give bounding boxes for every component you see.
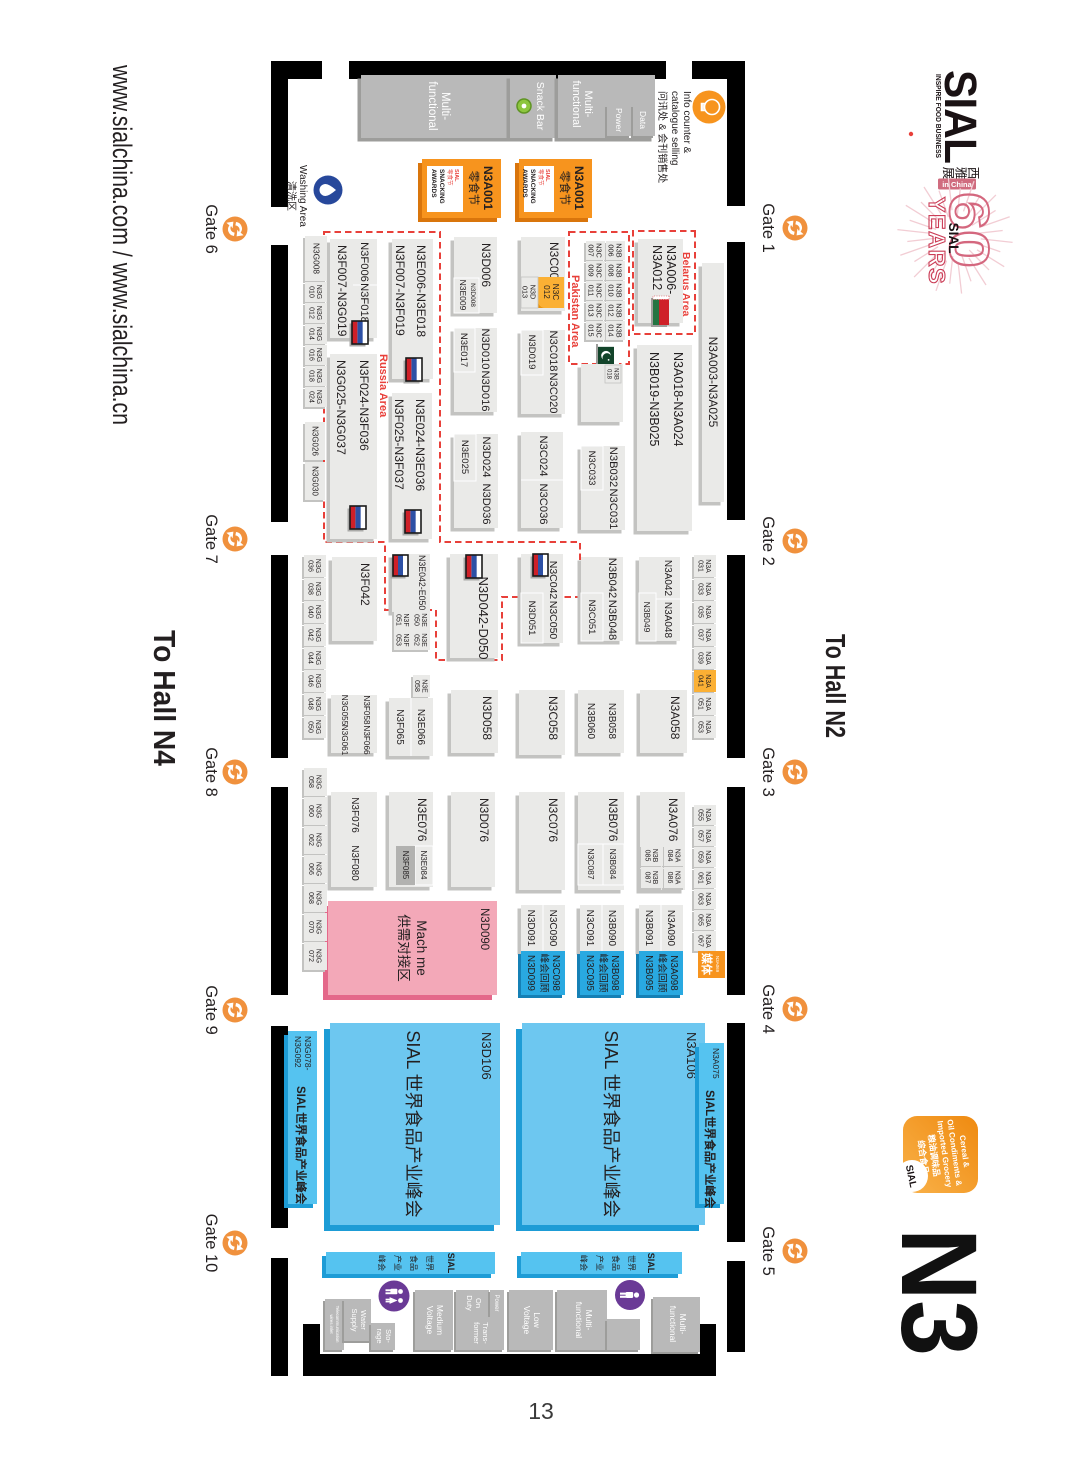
svg-text:N3A: N3A [704, 628, 711, 642]
svg-text:INSPIRE FOOD BUSINESS: INSPIRE FOOD BUSINESS [934, 74, 943, 158]
svg-text:046: 046 [307, 675, 314, 687]
svg-text:044: 044 [307, 652, 314, 664]
svg-text:SIAL 世界食品产业峰会: SIAL 世界食品产业峰会 [403, 1030, 423, 1217]
svg-text:014: 014 [308, 328, 315, 340]
svg-text:Gate 4: Gate 4 [759, 984, 777, 1034]
svg-text:SIAL: SIAL [446, 1253, 456, 1274]
svg-text:N3E: N3E [421, 679, 428, 693]
svg-text:N3C033: N3C033 [586, 451, 597, 486]
svg-text:N3D036: N3D036 [480, 483, 492, 524]
svg-text:Voltage: Voltage [522, 1306, 532, 1335]
svg-text:N3B084: N3B084 [608, 849, 618, 880]
svg-text:012: 012 [308, 307, 315, 319]
svg-text:N3D010: N3D010 [479, 328, 491, 369]
svg-text:036: 036 [307, 560, 314, 572]
svg-text:N3F024-N3F036: N3F024-N3F036 [357, 360, 371, 451]
svg-text:060: 060 [307, 805, 314, 817]
svg-text:N3C098: N3C098 [550, 955, 561, 991]
svg-text:To Hall N4: To Hall N4 [147, 630, 182, 767]
svg-text:067: 067 [697, 935, 704, 947]
svg-text:007: 007 [587, 244, 596, 256]
svg-text:N3F076: N3F076 [349, 797, 360, 833]
svg-text:零食节: 零食节 [558, 171, 572, 206]
svg-text:050: 050 [413, 614, 420, 626]
svg-text:Mach me: Mach me [414, 920, 429, 976]
svg-text:N3G: N3G [315, 369, 322, 383]
svg-text:N3E: N3E [420, 633, 427, 647]
svg-text:N3: N3 [879, 1228, 1000, 1356]
svg-text:050: 050 [307, 721, 314, 733]
svg-text:048: 048 [307, 698, 314, 710]
svg-text:N3G: N3G [314, 697, 321, 711]
svg-text:N3G026: N3G026 [311, 426, 320, 456]
svg-text:N3C020: N3C020 [547, 372, 559, 413]
svg-text:零食节: 零食节 [446, 169, 454, 186]
svg-text:010: 010 [308, 286, 315, 298]
svg-text:N3A: N3A [704, 913, 711, 927]
svg-text:产业: 产业 [595, 1255, 605, 1271]
svg-text:SIAL: SIAL [544, 169, 550, 182]
svg-text:former: former [472, 1322, 481, 1344]
svg-text:供需对接区: 供需对接区 [396, 914, 412, 982]
svg-text:N3C076: N3C076 [546, 798, 560, 842]
svg-text:052: 052 [413, 634, 420, 646]
svg-text:039: 039 [697, 652, 704, 664]
svg-text:N3G: N3G [314, 720, 321, 734]
svg-text:Russia Area: Russia Area [377, 354, 389, 418]
svg-text:N3A012: N3A012 [650, 245, 664, 290]
svg-text:014: 014 [607, 324, 616, 336]
svg-text:N3A: N3A [674, 871, 681, 885]
svg-text:070: 070 [307, 921, 314, 933]
svg-text:SIAL 世界食品产业峰会: SIAL 世界食品产业峰会 [601, 1030, 621, 1217]
svg-text:087: 087 [644, 872, 651, 884]
svg-text:084: 084 [666, 850, 673, 862]
svg-text:N3A042: N3A042 [662, 560, 673, 597]
svg-text:catalogue selling: catalogue selling [669, 91, 680, 166]
svg-text:N3A: N3A [704, 871, 711, 885]
svg-text:011: 011 [587, 285, 596, 297]
svg-text:N3A: N3A [704, 582, 711, 596]
svg-text:N3F007-N3G019: N3F007-N3G019 [335, 245, 349, 337]
svg-text:066: 066 [307, 863, 314, 875]
svg-text:媒体: 媒体 [700, 952, 714, 976]
svg-text:N3F007-N3F019: N3F007-N3F019 [393, 245, 407, 336]
svg-text:N3C090: N3C090 [547, 910, 558, 947]
svg-text:N3E084: N3E084 [419, 851, 428, 880]
svg-text:N3C058: N3C058 [546, 696, 560, 740]
svg-text:N3A: N3A [704, 808, 711, 822]
svg-text:峰会回顾: 峰会回顾 [656, 953, 669, 992]
svg-text:051: 051 [395, 614, 402, 626]
svg-text:Multi-: Multi- [678, 1314, 688, 1335]
svg-text:015: 015 [587, 324, 596, 336]
svg-text:Gate 2: Gate 2 [759, 516, 777, 566]
svg-text:Info counter &: Info counter & [681, 91, 692, 154]
svg-text:058: 058 [413, 680, 420, 692]
svg-text:N3F025-N3F037: N3F025-N3F037 [392, 399, 406, 490]
svg-text:N3D016: N3D016 [479, 370, 491, 411]
svg-text:053: 053 [395, 634, 402, 646]
svg-text:N3D019: N3D019 [526, 335, 537, 370]
svg-text:012: 012 [607, 304, 616, 316]
svg-text:013: 013 [587, 304, 596, 316]
svg-text:Gate 1: Gate 1 [759, 203, 777, 253]
svg-text:N3G: N3G [315, 327, 322, 341]
svg-text:062: 062 [307, 834, 314, 846]
svg-text:055: 055 [697, 809, 704, 821]
svg-text:N3A: N3A [704, 720, 711, 734]
svg-text:N3G061: N3G061 [340, 725, 349, 756]
svg-text:N3D076: N3D076 [477, 798, 491, 842]
svg-text:N3G030: N3G030 [311, 466, 320, 496]
svg-text:N3D106: N3D106 [479, 1032, 494, 1080]
svg-text:展: 展 [941, 167, 955, 180]
svg-text:Gate 5: Gate 5 [759, 1226, 777, 1276]
svg-text:Trans-: Trans- [481, 1322, 490, 1344]
svg-text:Gate 3: Gate 3 [759, 747, 777, 797]
svg-text:N3E017: N3E017 [458, 333, 469, 367]
svg-text:024: 024 [308, 391, 315, 403]
svg-text:N3E042-E050: N3E042-E050 [417, 555, 427, 610]
svg-text:N3G: N3G [314, 628, 321, 642]
svg-text:N3G008: N3G008 [311, 243, 321, 275]
svg-text:018: 018 [606, 369, 612, 380]
svg-text:N3A001: N3A001 [481, 166, 495, 210]
svg-text:040: 040 [307, 606, 314, 618]
svg-text:N3A: N3A [704, 829, 711, 843]
svg-text:www.sialchina.com / www.sialch: www.sialchina.com / www.sialchina.cn [107, 64, 137, 425]
svg-text:Sto-: Sto- [384, 1329, 393, 1343]
svg-text:Data: Data [638, 111, 648, 129]
svg-text:SIAL: SIAL [946, 223, 961, 254]
svg-text:N3B: N3B [651, 849, 658, 863]
svg-text:010: 010 [607, 284, 616, 296]
svg-text:063: 063 [697, 893, 704, 905]
svg-text:042: 042 [307, 629, 314, 641]
svg-text:N3E006-N3E018: N3E006-N3E018 [414, 245, 428, 337]
svg-text:N3A003-N3A025: N3A003-N3A025 [706, 337, 720, 428]
svg-text:Gate 10: Gate 10 [202, 1214, 220, 1273]
svg-text:峰会回顾: 峰会回顾 [597, 953, 610, 992]
svg-text:峰会: 峰会 [377, 1255, 387, 1271]
svg-text:Washing Area: Washing Area [297, 165, 308, 227]
svg-text:in China: in China [942, 180, 972, 189]
svg-text:N3G: N3G [314, 559, 321, 573]
svg-text:065: 065 [697, 914, 704, 926]
svg-text:N3E024-N3E036: N3E024-N3E036 [413, 399, 427, 491]
svg-text:N3A: N3A [704, 892, 711, 906]
svg-text:N3A: N3A [704, 605, 711, 619]
svg-text:N3B: N3B [613, 368, 619, 380]
svg-text:functional: functional [668, 1306, 678, 1342]
svg-text:006: 006 [607, 244, 616, 256]
svg-text:N3G: N3G [315, 891, 322, 905]
svg-text:N3B060: N3B060 [585, 703, 596, 740]
svg-text:N3F018: N3F018 [358, 283, 370, 323]
svg-text:Telecommunication: Telecommunication [335, 1306, 340, 1343]
svg-text:N3E066: N3E066 [415, 709, 426, 746]
svg-text:N3B098: N3B098 [609, 955, 620, 991]
svg-text:072: 072 [307, 950, 314, 962]
svg-text:N3A075: N3A075 [711, 1048, 721, 1079]
svg-text:N3G: N3G [315, 775, 322, 789]
svg-text:Gate 9: Gate 9 [202, 985, 220, 1035]
svg-text:N3F065: N3F065 [394, 709, 405, 745]
svg-text:Low: Low [532, 1312, 542, 1328]
svg-text:峰会回顾: 峰会回顾 [538, 953, 551, 992]
svg-text:N3C: N3C [551, 284, 560, 300]
svg-text:N3E: N3E [420, 613, 427, 627]
svg-text:wires inlet: wires inlet [329, 1314, 334, 1334]
svg-text:N3B032: N3B032 [607, 447, 619, 487]
svg-text:N3F058: N3F058 [362, 695, 371, 725]
svg-text:SIAL世界食品产业峰会: SIAL世界食品产业峰会 [294, 1086, 308, 1205]
svg-text:051: 051 [697, 698, 704, 710]
svg-text:Duty: Duty [465, 1295, 474, 1311]
svg-text:N3B076: N3B076 [606, 798, 620, 842]
svg-text:059: 059 [697, 851, 704, 863]
svg-text:N3D099: N3D099 [525, 955, 536, 991]
svg-text:产业: 产业 [393, 1255, 403, 1271]
svg-text:Supply: Supply [350, 1309, 359, 1332]
svg-text:N3G: N3G [314, 651, 321, 665]
svg-text:N3A069: N3A069 [715, 956, 720, 973]
svg-text:N3A: N3A [704, 651, 711, 665]
svg-text:零食节: 零食节 [467, 171, 481, 206]
svg-text:N3G055: N3G055 [340, 695, 349, 726]
svg-text:N3E009: N3E009 [458, 280, 468, 311]
svg-text:041: 041 [697, 675, 704, 687]
svg-text:Power: Power [614, 108, 624, 132]
svg-text:058: 058 [307, 776, 314, 788]
svg-text:rage: rage [375, 1328, 384, 1343]
svg-text:N3C091: N3C091 [584, 910, 595, 947]
svg-text:Water: Water [359, 1310, 368, 1330]
svg-text:N3F: N3F [402, 633, 409, 646]
svg-text:N3G078-: N3G078- [303, 1036, 313, 1071]
svg-text:N3C087: N3C087 [586, 848, 596, 879]
svg-text:N3A: N3A [674, 849, 681, 863]
svg-text:To Hall N2: To Hall N2 [820, 634, 851, 738]
svg-text:峰会: 峰会 [579, 1255, 589, 1271]
svg-text:N3B090: N3B090 [606, 910, 617, 947]
svg-text:N3G: N3G [315, 285, 322, 299]
svg-text:N3D091: N3D091 [525, 910, 536, 947]
svg-text:N3F080: N3F080 [349, 845, 360, 881]
svg-text:053: 053 [697, 721, 704, 733]
svg-text:世界: 世界 [627, 1255, 637, 1271]
svg-text:008: 008 [607, 264, 616, 276]
svg-text:N3A: N3A [704, 697, 711, 711]
svg-text:AWARDS: AWARDS [430, 169, 437, 198]
svg-text:N3G: N3G [315, 920, 322, 934]
svg-text:068: 068 [307, 892, 314, 904]
svg-text:N3C031: N3C031 [607, 488, 619, 529]
svg-text:SIAL世界食品产业峰会: SIAL世界食品产业峰会 [703, 1090, 717, 1209]
svg-text:086: 086 [666, 872, 673, 884]
svg-text:038: 038 [307, 583, 314, 595]
svg-text:057: 057 [697, 830, 704, 842]
svg-text:N3A090: N3A090 [665, 910, 676, 947]
svg-text:N3F: N3F [402, 613, 409, 626]
svg-text:SNACKING: SNACKING [529, 169, 536, 204]
svg-text:009: 009 [587, 264, 596, 276]
svg-text:N3A098: N3A098 [668, 955, 679, 991]
svg-text:AWARDS: AWARDS [521, 169, 528, 198]
svg-text:N3E025: N3E025 [459, 440, 470, 474]
svg-text:016: 016 [308, 349, 315, 361]
svg-text:Power: Power [493, 1294, 499, 1311]
svg-text:N3A: N3A [704, 559, 711, 573]
svg-text:Gate 6: Gate 6 [202, 204, 220, 254]
svg-text:N3C051: N3C051 [586, 600, 597, 635]
svg-text:N3C024: N3C024 [537, 435, 549, 476]
svg-text:零食节: 零食节 [537, 169, 545, 186]
svg-text:N3G: N3G [315, 862, 322, 876]
svg-text:世界: 世界 [425, 1255, 435, 1271]
svg-text:N3A076: N3A076 [666, 798, 680, 842]
svg-text:N3D042-D050: N3D042-D050 [476, 576, 491, 659]
svg-text:N3G: N3G [315, 949, 322, 963]
svg-text:013: 013 [521, 286, 530, 298]
svg-text:N3F006: N3F006 [358, 242, 370, 282]
svg-text:N3D008: N3D008 [469, 283, 476, 307]
svg-text:061: 061 [697, 872, 704, 884]
svg-text:N3G: N3G [314, 582, 321, 596]
svg-text:N3C050: N3C050 [547, 601, 559, 640]
svg-text:functional: functional [570, 80, 582, 127]
svg-text:N3D051: N3D051 [526, 601, 537, 636]
svg-text:N3G: N3G [315, 390, 322, 404]
svg-text:Gate 7: Gate 7 [202, 514, 220, 564]
svg-text:037: 037 [697, 629, 704, 641]
svg-text:N3B049: N3B049 [642, 602, 652, 633]
svg-text:Multi-: Multi- [584, 1310, 594, 1331]
svg-text:食品: 食品 [409, 1255, 419, 1271]
svg-text:N3G: N3G [315, 804, 322, 818]
svg-text:Pakistan Area: Pakistan Area [569, 275, 581, 348]
svg-text:Multi-: Multi- [582, 91, 594, 118]
svg-text:N3G: N3G [315, 348, 322, 362]
svg-text:N3E076: N3E076 [415, 798, 429, 842]
svg-text:N3B: N3B [651, 871, 658, 885]
svg-text:N3C095: N3C095 [584, 955, 595, 991]
svg-text:N3A: N3A [704, 934, 711, 948]
svg-text:N3A058: N3A058 [668, 696, 682, 740]
svg-text:N3A: N3A [704, 674, 711, 688]
svg-text:N3B042: N3B042 [606, 558, 618, 598]
svg-text:N3G025-N3G037: N3G025-N3G037 [334, 360, 348, 455]
svg-text:031: 031 [697, 560, 704, 572]
svg-text:N3B058: N3B058 [606, 703, 617, 740]
svg-text:012: 012 [542, 285, 551, 299]
svg-text:N3A001: N3A001 [572, 166, 586, 210]
svg-text:Snack Bar: Snack Bar [534, 82, 546, 131]
svg-text:SNACKING: SNACKING [438, 169, 445, 204]
svg-text:SIAL: SIAL [646, 1253, 656, 1274]
svg-text:N3D058: N3D058 [480, 696, 494, 740]
svg-text:13: 13 [528, 1398, 554, 1424]
svg-text:N3D090: N3D090 [478, 908, 490, 950]
svg-text:N3B095: N3B095 [643, 955, 654, 991]
svg-text:问讯处 & 会刊销售处: 问讯处 & 会刊销售处 [656, 91, 669, 183]
svg-text:Gate 8: Gate 8 [202, 747, 220, 797]
svg-text:035: 035 [697, 606, 704, 618]
svg-text:N3B091: N3B091 [643, 910, 654, 947]
svg-text:N3C036: N3C036 [537, 483, 549, 524]
svg-text:N3G092: N3G092 [293, 1036, 303, 1068]
svg-text:N3G: N3G [315, 833, 322, 847]
svg-text:N3A006-: N3A006- [664, 245, 678, 294]
svg-text:N3D006: N3D006 [479, 243, 493, 287]
svg-text:033: 033 [697, 583, 704, 595]
svg-text:N3F066: N3F066 [362, 725, 371, 755]
svg-text:清洗区: 清洗区 [285, 181, 298, 211]
svg-text:N3B019-N3B025: N3B019-N3B025 [647, 352, 661, 447]
svg-text:Voltage: Voltage [425, 1306, 435, 1335]
svg-text:N3G: N3G [315, 306, 322, 320]
svg-text:N3B048: N3B048 [606, 600, 618, 640]
svg-text:N3A048: N3A048 [662, 602, 673, 639]
svg-text:Medium: Medium [435, 1305, 445, 1335]
svg-text:N3G: N3G [314, 605, 321, 619]
svg-text:functional: functional [426, 81, 438, 130]
svg-text:Multi-: Multi- [439, 92, 451, 120]
svg-text:N3A018-N3A024: N3A018-N3A024 [671, 352, 685, 447]
svg-text:N3F085: N3F085 [401, 851, 410, 880]
svg-text:食品: 食品 [611, 1255, 621, 1271]
svg-text:085: 085 [644, 850, 651, 862]
svg-text:N3F042: N3F042 [358, 563, 372, 606]
svg-text:functional: functional [574, 1302, 584, 1338]
svg-text:On: On [474, 1298, 483, 1308]
svg-text:018: 018 [308, 370, 315, 382]
svg-text:N3C018: N3C018 [547, 330, 559, 371]
svg-text:N3A: N3A [704, 850, 711, 864]
svg-text:N3D024: N3D024 [480, 436, 492, 477]
svg-text:SIAL: SIAL [453, 169, 459, 182]
svg-text:N3G: N3G [314, 674, 321, 688]
